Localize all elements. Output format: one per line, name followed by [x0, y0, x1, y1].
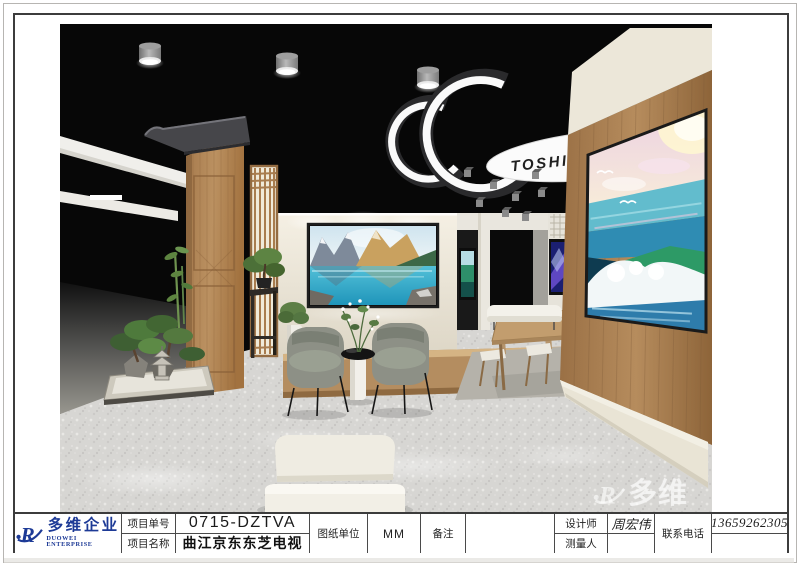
- field-surveyor-label: 测量人: [555, 534, 608, 554]
- field-phone-value: 13659262305: [712, 514, 787, 534]
- main-tv: [308, 224, 438, 307]
- company-name-cn: 多维企业: [48, 518, 120, 534]
- field-unit-label: 图纸单位: [310, 514, 368, 553]
- field-project-no-label: 项目单号: [122, 514, 176, 534]
- downlight-cylinder: [136, 43, 164, 70]
- display-tv-small-1: [459, 248, 476, 300]
- field-designer-value: 周宏伟: [608, 514, 655, 534]
- company-name-en: DUOWEI ENTERPRISE: [46, 536, 121, 549]
- company-logo: R 多维企业 DUOWEI ENTERPRISE: [15, 514, 122, 553]
- svg-text:R: R: [20, 522, 35, 546]
- field-phone-label: 联系电话: [655, 514, 712, 553]
- field-remark-value: [466, 514, 555, 553]
- interior-render: TOSHIBA: [60, 24, 712, 512]
- field-project-name-value: 曲江京东东芝电视: [176, 534, 310, 554]
- drawing-sheet: TOSHIBA: [0, 0, 800, 566]
- logo-mark-icon: R: [15, 518, 43, 550]
- svg-text:R: R: [598, 480, 616, 509]
- field-unit-value: MM: [368, 514, 421, 553]
- field-remark-label: 备注: [421, 514, 466, 553]
- sheet-edge-shadow: [4, 558, 794, 563]
- logo-mark-icon: R: [592, 477, 626, 511]
- field-project-name-label: 项目名称: [122, 534, 176, 554]
- field-phone-empty: [712, 534, 787, 554]
- field-designer-label: 设计师: [555, 514, 608, 534]
- field-surveyor-value: [608, 534, 655, 554]
- title-block: R 多维企业 DUOWEI ENTERPRISE 项目单号 0715-DZTVA…: [15, 512, 787, 553]
- field-project-no-value: 0715-DZTVA: [176, 514, 310, 534]
- watermark-text: 多维: [628, 480, 688, 509]
- downlight-cylinder: [273, 53, 301, 80]
- doorway: [490, 230, 533, 315]
- white-ottoman: [257, 435, 413, 512]
- watermark-logo: R 多维: [592, 476, 718, 512]
